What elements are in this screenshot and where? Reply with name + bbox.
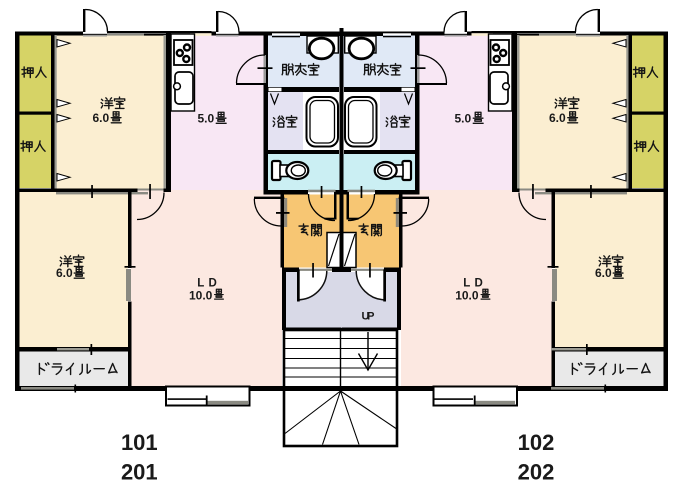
svg-text:UP: UP [362,311,375,323]
svg-text:LD: LD [463,277,487,289]
svg-text:6.0: 6.0 [56,266,73,280]
svg-text:201: 201 [121,459,158,484]
svg-text:202: 202 [518,459,555,484]
svg-text:10.0: 10.0 [189,289,213,303]
svg-text:6.0: 6.0 [93,111,110,125]
svg-text:5.0: 5.0 [455,112,472,126]
svg-text:6.0: 6.0 [595,266,612,280]
svg-text:5.0: 5.0 [198,112,215,126]
svg-text:102: 102 [518,430,555,455]
svg-text:10.0: 10.0 [455,289,479,303]
svg-text:101: 101 [121,430,158,455]
svg-text:LD: LD [197,277,221,289]
svg-text:6.0: 6.0 [549,111,566,125]
